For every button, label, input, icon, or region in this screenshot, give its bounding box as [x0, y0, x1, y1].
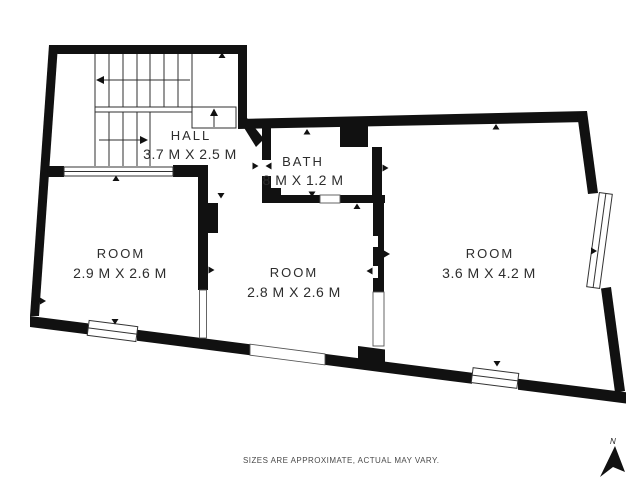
wall-bottom-4	[385, 362, 472, 384]
window-icon-left-room	[87, 320, 138, 341]
room-label-left-name: ROOM	[97, 246, 145, 261]
marker-right-icon-bath-right	[383, 165, 389, 172]
marker-up-icon-bath-top	[304, 129, 311, 135]
wall-right-upper	[577, 111, 598, 194]
room-label-hall-dims: 3.7 M X 2.5 M	[143, 146, 237, 162]
wall-bath-bottom-left	[262, 195, 320, 203]
room-labels: HALL 3.7 M X 2.5 M BATH 8 M X 1.2 M ROOM…	[73, 128, 536, 300]
footer-note: SIZES ARE APPROXIMATE, ACTUAL MAY VARY.	[243, 456, 439, 465]
wall-divider-right	[373, 203, 384, 292]
marker-right-icon-left-divider	[209, 267, 215, 274]
wall-partition-cap-left	[47, 166, 64, 177]
marker-up-icon-bath-door	[354, 204, 361, 210]
stair-landing	[95, 107, 192, 112]
wall-partition-cap-right	[173, 165, 208, 177]
room-label-middle-name: ROOM	[270, 265, 318, 280]
wall-bottom-pillar	[358, 346, 385, 373]
room-label-bath-name: BATH	[282, 154, 324, 169]
marker-down-icon-hall-bottom	[218, 193, 225, 199]
room-label-middle-dims: 2.8 M X 2.6 M	[247, 284, 341, 300]
stair-arrow-right-icon	[140, 136, 148, 144]
marker-right-icon-bath-left-a	[253, 163, 259, 170]
opening-divider-right	[373, 292, 384, 346]
wall-bath-right	[372, 147, 382, 203]
marker-up-icon-rightroom-top	[493, 124, 500, 130]
walls	[30, 45, 626, 404]
wall-bottom-3	[325, 354, 358, 369]
room-label-hall-name: HALL	[171, 128, 212, 143]
window-icon-right-room-side	[587, 193, 613, 289]
room-label-left-dims: 2.9 M X 2.6 M	[73, 265, 167, 281]
compass: N	[600, 437, 625, 477]
wall-left	[30, 45, 58, 316]
wall-stair-right	[238, 45, 247, 122]
wall-right-lower	[601, 287, 625, 393]
floorplan-image: HALL 3.7 M X 2.5 M BATH 8 M X 1.2 M ROOM…	[0, 0, 640, 480]
room-label-bath-dims: 8 M X 1.2 M	[263, 172, 344, 188]
wall-bottom-5	[518, 379, 626, 404]
marker-right-icon-left-wall	[40, 298, 46, 305]
wall-bath-left-upper	[262, 128, 271, 160]
window-icon-hall-partition	[64, 167, 173, 176]
floorplan-svg: HALL 3.7 M X 2.5 M BATH 8 M X 1.2 M ROOM…	[0, 0, 640, 480]
marker-right-icon-divider-notch1	[384, 251, 390, 258]
wall-bottom-2	[137, 330, 250, 356]
wall-bath-bottom-right	[340, 195, 385, 203]
opening-divider-left	[200, 290, 207, 338]
compass-n-label: N	[610, 437, 616, 446]
marker-left-icon-divider-notch2	[367, 268, 373, 275]
window-icon-right-room-bottom	[471, 368, 519, 389]
divider-notch-1	[372, 236, 378, 247]
marker-down-icon-right-window	[494, 361, 501, 367]
marker-left-icon-bath-left-b	[266, 163, 272, 170]
wall-divider-left-block	[206, 203, 218, 233]
divider-notch-2	[372, 266, 378, 278]
stair-arrow-up-icon	[210, 109, 218, 117]
stair-arrow-left-icon	[96, 76, 104, 84]
wall-bath-top-block	[340, 120, 368, 147]
wall-bottom-1	[30, 316, 88, 334]
opening-bath-bottom	[320, 195, 340, 203]
opening-middle-room-bottom	[250, 344, 325, 365]
wall-top-right	[238, 111, 587, 129]
door-markers	[40, 53, 597, 367]
room-label-right-name: ROOM	[466, 246, 514, 261]
north-arrow-icon	[600, 446, 625, 477]
wall-top-left	[49, 45, 247, 54]
room-label-right-dims: 3.6 M X 4.2 M	[442, 265, 536, 281]
